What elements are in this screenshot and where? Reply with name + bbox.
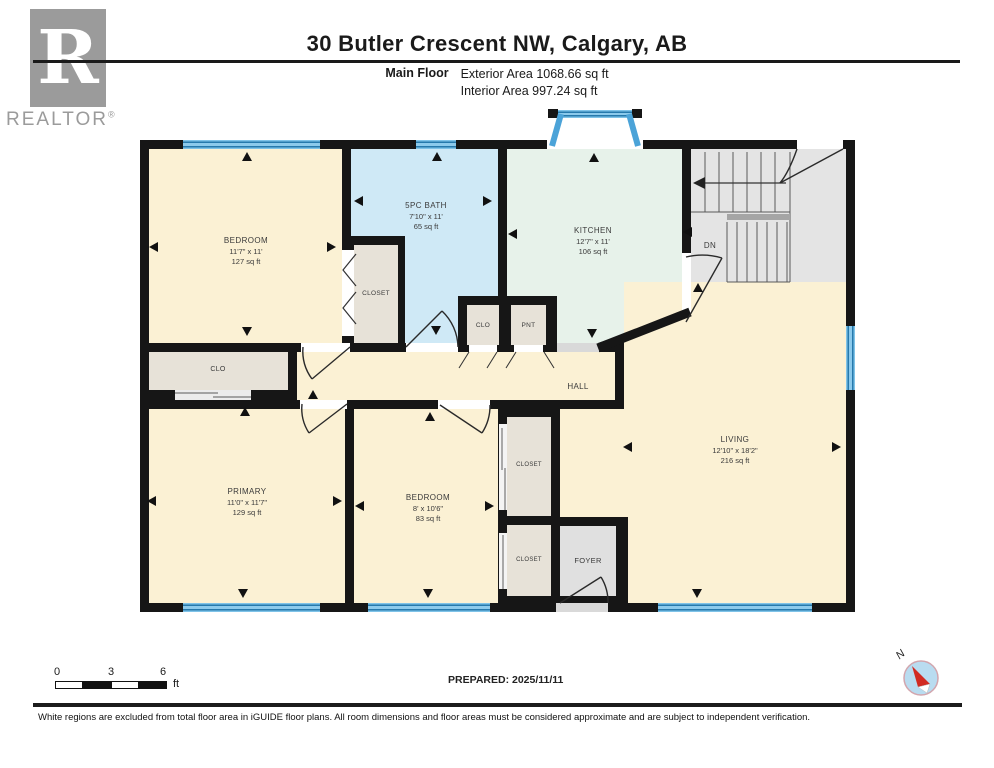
- stair-direction-arrow-icon: [693, 177, 705, 189]
- scale-tick-0: 0: [50, 666, 64, 678]
- prepared-date: PREPARED: 2025/11/11: [448, 674, 563, 686]
- scale-tick-6: 6: [156, 666, 170, 678]
- scale-bar: [55, 681, 169, 689]
- dimension-arrow-icon: [423, 589, 433, 598]
- compass-icon: N: [886, 640, 950, 704]
- scale-unit: ft: [173, 678, 179, 690]
- dimension-arrow-icon: [693, 283, 703, 292]
- dimension-arrow-icon: [623, 442, 632, 452]
- compass-north-label: N: [894, 648, 908, 662]
- bay-window-left: [552, 114, 561, 146]
- room-label-kitchen: KITCHEN 12'7" x 11' 106 sq ft: [533, 225, 653, 258]
- room-label-closet-up: CLOSET: [507, 462, 551, 468]
- room-label-bath: 5PC BATH 7'10" x 11' 65 sq ft: [366, 200, 486, 233]
- bifold-closet-bedroom1: [343, 254, 356, 324]
- dimension-arrow-icon: [692, 589, 702, 598]
- dimension-arrow-icon: [832, 442, 841, 452]
- dimension-arrow-icon: [431, 326, 441, 335]
- dimension-arrow-icon: [147, 496, 156, 506]
- dimension-arrow-icon: [242, 152, 252, 161]
- dimension-arrow-icon: [485, 501, 494, 511]
- dimension-arrow-icon: [483, 196, 492, 206]
- room-label-clo-small: CLO: [467, 322, 499, 329]
- dimension-arrow-icon: [333, 496, 342, 506]
- dimension-arrow-icon: [425, 412, 435, 421]
- dimension-arrow-icon: [683, 227, 692, 237]
- room-label-bedroom2: BEDROOM 8' x 10'6" 83 sq ft: [368, 492, 488, 525]
- room-label-closet-hall: CLO: [188, 366, 248, 373]
- dimension-arrow-icon: [149, 242, 158, 252]
- room-label-closet-low: CLOSET: [507, 557, 551, 563]
- room-label-pantry: PNT: [511, 322, 546, 329]
- room-label-primary: PRIMARY 11'0" x 11'7" 129 sq ft: [187, 486, 307, 519]
- room-label-living: LIVING 12'10" x 18'2" 216 sq ft: [675, 434, 795, 467]
- stair-tread: [727, 214, 790, 220]
- angled-wall: [598, 312, 690, 348]
- dimension-arrow-icon: [508, 229, 517, 239]
- room-label-hall: HALL: [548, 382, 608, 391]
- floorplan-page: R 30 Butler Crescent NW, Calgary, AB REA…: [0, 0, 994, 768]
- dimension-arrow-icon: [308, 390, 318, 399]
- dimension-arrow-icon: [589, 153, 599, 162]
- dimension-arrow-icon: [354, 196, 363, 206]
- dimension-arrow-icon: [587, 329, 597, 338]
- dimension-arrow-icon: [355, 501, 364, 511]
- dimension-arrow-icon: [240, 407, 250, 416]
- stairs-down-label: DN: [693, 241, 727, 250]
- room-label-foyer: FOYER: [558, 556, 618, 565]
- dimension-arrow-icon: [432, 152, 442, 161]
- dimension-arrow-icon: [238, 589, 248, 598]
- footer-divider: [33, 703, 962, 707]
- bay-window-right: [629, 114, 638, 146]
- dimension-arrow-icon: [327, 242, 336, 252]
- room-label-bedroom1: BEDROOM 11'7" x 11' 127 sq ft: [186, 235, 306, 268]
- disclaimer-text: White regions are excluded from total fl…: [38, 712, 968, 723]
- scale-tick-3: 3: [104, 666, 118, 678]
- room-label-closet-bedroom1: CLOSET: [354, 290, 398, 297]
- bifold-clo-pnt: [459, 352, 554, 368]
- dimension-arrow-icon: [242, 327, 252, 336]
- floorplan-linework: [0, 0, 994, 768]
